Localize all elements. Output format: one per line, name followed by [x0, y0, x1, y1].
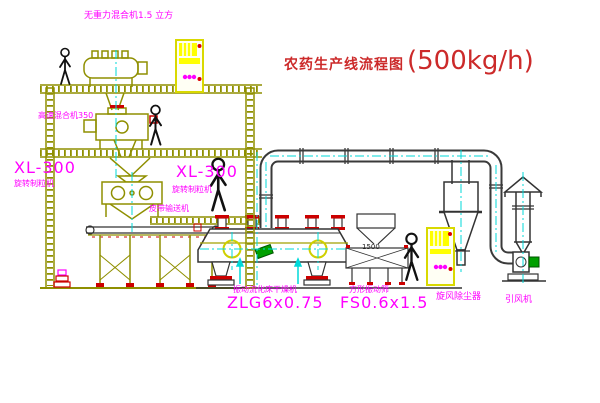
label-granulator-left-model: XL-300 [14, 160, 76, 176]
process-flow-diagram: 农药生产线流程图 (500kg/h) 无重力混合机1.5 立方 高速混合机350… [0, 0, 600, 403]
label-granulator-center-model: XL-300 [176, 164, 238, 180]
label-gravity-mixer: 无重力混合机1.5 立方 [84, 12, 173, 21]
person-ground [405, 234, 418, 280]
fan-motor [529, 257, 539, 267]
label-granulator-left-name: 旋转制粒机 [14, 180, 54, 188]
label-high-speed-mixer: 高速混合机350 [38, 112, 93, 120]
label-sieve-model: FS0.6x1.5 [340, 295, 428, 311]
label-dimension-1500: 1500 [362, 244, 380, 251]
title-text: 农药生产线流程图 [284, 54, 404, 74]
belt-conveyor [86, 224, 220, 237]
person-top-floor [60, 49, 70, 85]
label-cyclone: 旋风除尘器 [436, 293, 481, 302]
control-cabinet-2 [427, 228, 454, 285]
person-second-floor [150, 106, 161, 145]
fluid-bed-dryer [198, 215, 350, 285]
vibrating-sieve [346, 245, 408, 285]
diagram-title: 农药生产线流程图 (500kg/h) [284, 46, 534, 76]
surge-hopper [357, 214, 395, 244]
title-capacity: (500kg/h) [407, 46, 534, 76]
dryer-feet [208, 259, 330, 285]
stacked-goods [54, 270, 70, 287]
label-belt-conveyor: 皮带输送机 [149, 205, 189, 213]
control-cabinet-1 [176, 40, 203, 92]
label-granulator-center-name: 旋转制粒机 [172, 186, 212, 194]
label-fan: 引风机 [505, 296, 532, 305]
label-dryer-model: ZLG6x0.75 [227, 295, 324, 311]
